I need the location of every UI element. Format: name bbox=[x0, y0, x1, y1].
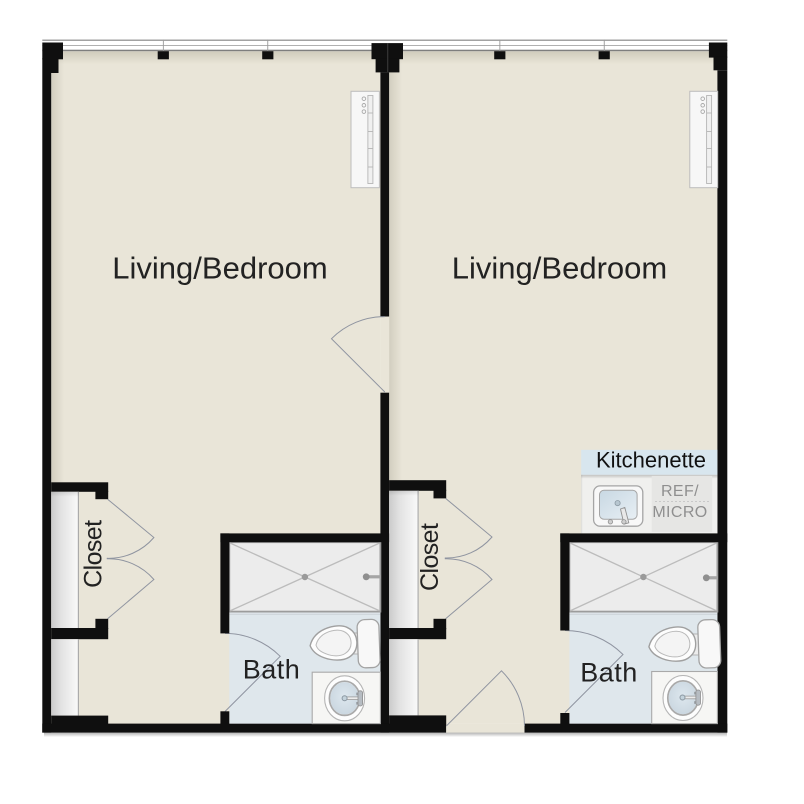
svg-text:MICRO: MICRO bbox=[652, 504, 707, 521]
svg-text:Closet: Closet bbox=[416, 523, 444, 591]
svg-text:REF/: REF/ bbox=[661, 483, 699, 500]
svg-text:Bath: Bath bbox=[580, 658, 638, 688]
svg-text:Closet: Closet bbox=[80, 520, 108, 588]
svg-text:Kitchenette: Kitchenette bbox=[596, 447, 706, 472]
svg-text:Living/Bedroom: Living/Bedroom bbox=[112, 251, 327, 286]
svg-text:Bath: Bath bbox=[243, 655, 301, 685]
svg-text:Living/Bedroom: Living/Bedroom bbox=[452, 251, 667, 286]
